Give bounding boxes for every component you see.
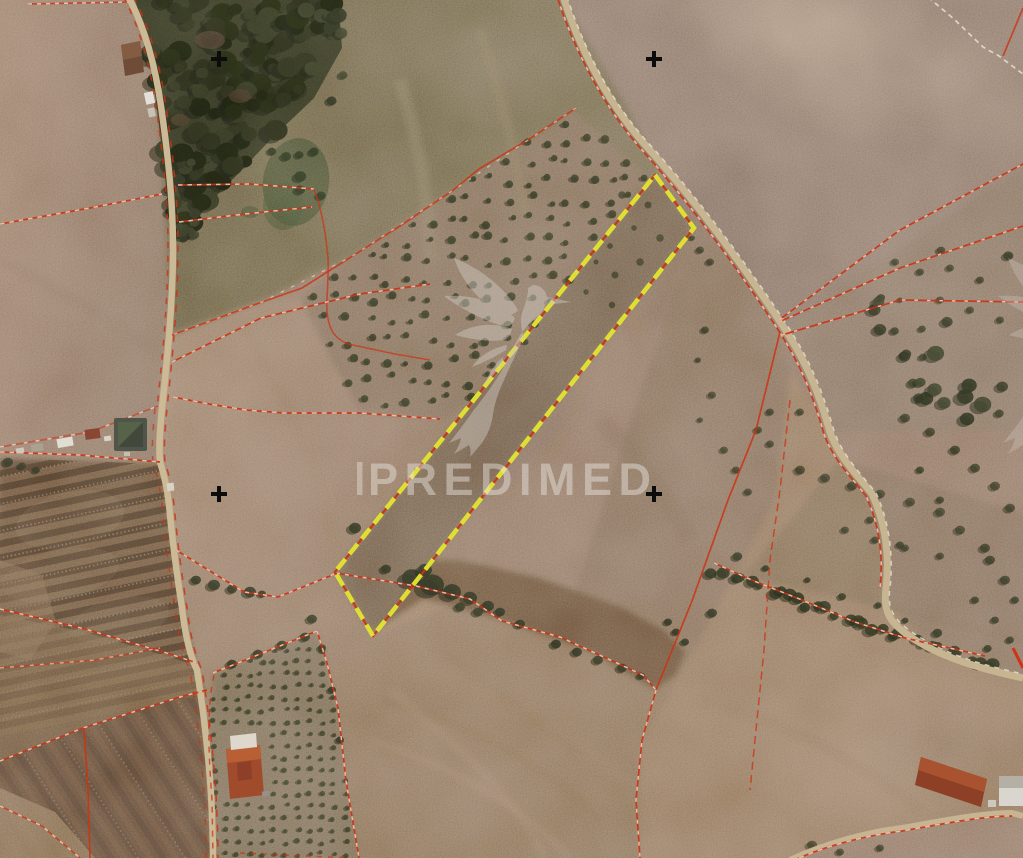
svg-text:PREDIMED: PREDIMED: [368, 454, 658, 505]
